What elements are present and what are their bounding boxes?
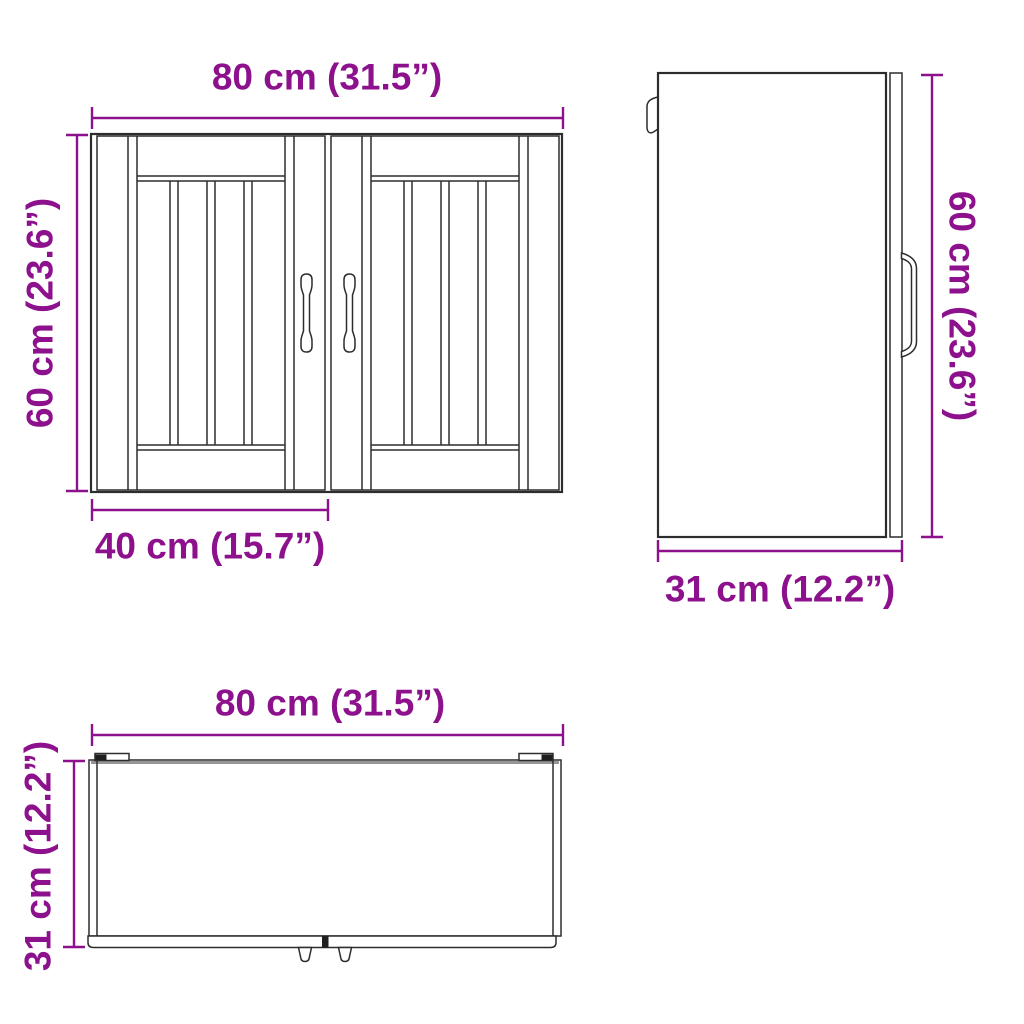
hinge-plate-right	[519, 754, 553, 761]
front-view-drawing	[91, 134, 562, 492]
side-view-drawing	[647, 73, 917, 537]
cabinet-dimension-diagram: 80 cm (31.5”) 60 cm (23.6”) 40 cm (15.7”…	[0, 0, 1024, 1024]
top-handle-right-icon	[339, 948, 352, 962]
hinge-icon	[647, 97, 658, 133]
top-depth-label: 31 cm (12.2”)	[20, 741, 57, 971]
top-width-label: 80 cm (31.5”)	[215, 685, 445, 722]
side-height-dimension-line	[921, 75, 943, 537]
side-handle-icon	[902, 253, 917, 357]
hinge-plate-left	[95, 754, 129, 761]
side-depth-label: 31 cm (12.2”)	[665, 571, 895, 608]
front-right-door	[331, 136, 559, 490]
top-view-drawing	[88, 754, 561, 962]
diagram-canvas	[0, 0, 1024, 1024]
front-height-label: 60 cm (23.6”)	[22, 198, 59, 428]
front-door-width-label: 40 cm (15.7”)	[95, 528, 325, 565]
front-width-label: 80 cm (31.5”)	[212, 59, 442, 96]
door-gap	[322, 936, 329, 948]
side-depth-dimension-line	[658, 540, 902, 562]
side-height-label: 60 cm (23.6”)	[944, 191, 981, 421]
side-door-panel	[890, 73, 902, 537]
front-left-door	[97, 136, 325, 490]
side-cabinet-outline	[658, 73, 886, 537]
top-handle-left-icon	[299, 948, 312, 962]
front-height-dimension-line	[66, 135, 88, 491]
top-width-dimension-line	[92, 724, 563, 746]
top-depth-dimension-line	[63, 761, 85, 947]
top-cabinet-outline	[89, 760, 561, 936]
front-width-dimension-line	[92, 107, 563, 129]
front-door-width-dimension-line	[92, 499, 328, 521]
